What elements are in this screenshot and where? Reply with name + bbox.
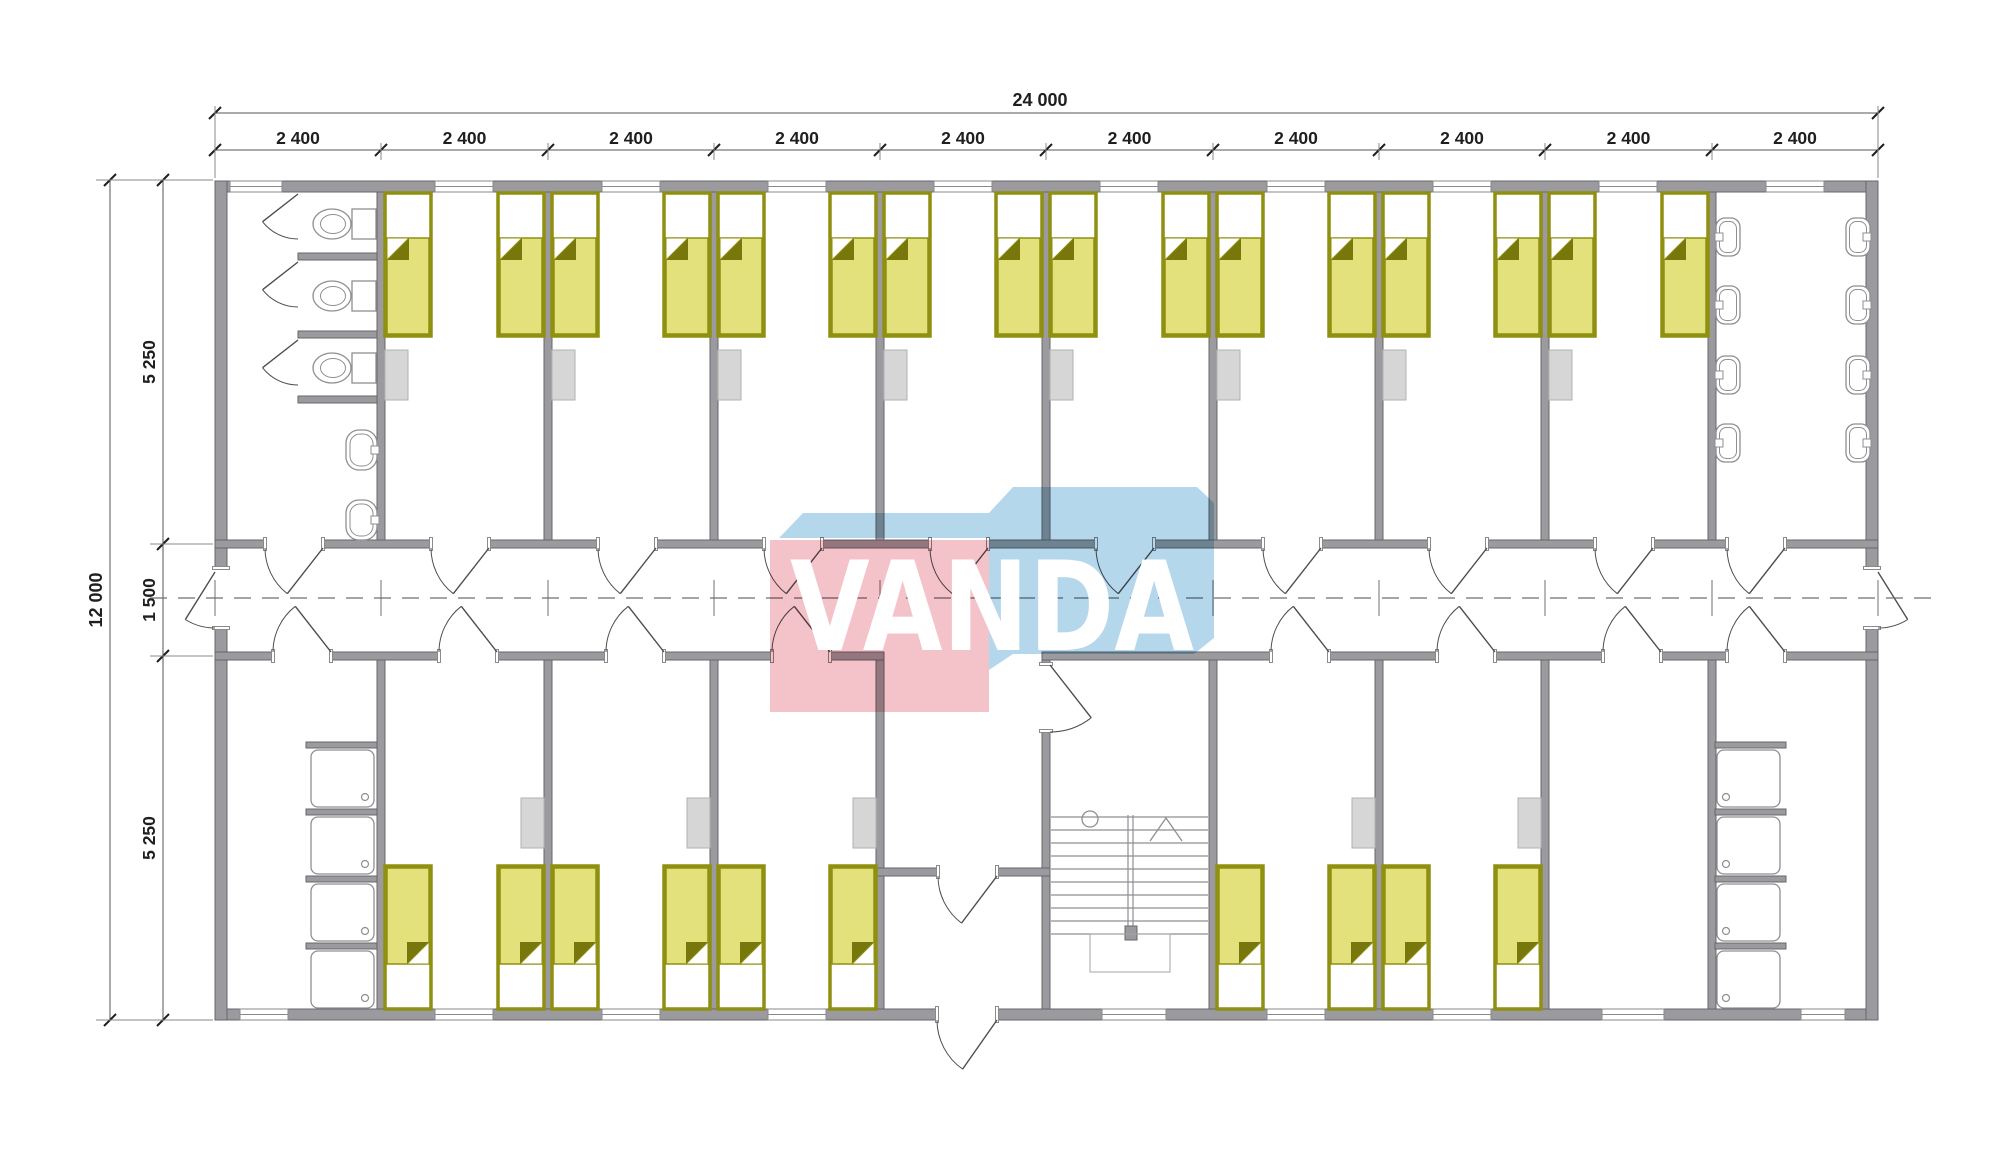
door-opening	[1429, 539, 1487, 550]
shower-partition	[1715, 809, 1786, 815]
bed	[1662, 193, 1708, 336]
bed	[1329, 866, 1375, 1009]
dim-label-2400: 2 400	[609, 128, 653, 148]
dim-label-segment: 5 250	[139, 340, 159, 384]
nightstand	[1352, 798, 1375, 848]
shower-tray	[1717, 951, 1780, 1008]
door-opening	[1437, 651, 1495, 662]
door-jamb	[213, 627, 230, 630]
stair-newel	[1125, 926, 1137, 940]
shower-partition	[306, 809, 377, 815]
nightstand	[687, 798, 710, 848]
shower-partition	[306, 876, 377, 882]
bed	[996, 193, 1042, 336]
nightstand	[884, 350, 907, 400]
shower-partition	[306, 943, 377, 949]
washbasin	[1715, 424, 1740, 462]
nightstand	[1217, 350, 1240, 400]
dim-label-12000: 12 000	[86, 572, 106, 627]
door-opening	[1271, 651, 1329, 662]
nightstand	[853, 798, 876, 848]
watermark-logo-text: VANDA	[790, 536, 1194, 680]
bed	[385, 193, 431, 336]
door-opening	[1603, 651, 1661, 662]
shower-drain	[362, 995, 369, 1002]
door-opening	[938, 867, 997, 878]
shower-drain	[1723, 794, 1730, 801]
shower-tray	[311, 884, 374, 941]
washbasin-tap	[1715, 301, 1723, 309]
dim-label-24000: 24 000	[1012, 90, 1067, 110]
shower-tray	[311, 750, 374, 807]
door-opening	[1595, 539, 1653, 550]
nightstand	[1518, 798, 1541, 848]
washbasin	[1846, 424, 1871, 462]
shower-partition	[306, 742, 377, 748]
shower-partition	[1715, 742, 1786, 748]
dim-label-2400: 2 400	[941, 128, 985, 148]
door-opening	[265, 539, 323, 550]
bed	[1549, 193, 1595, 336]
dim-label-2400: 2 400	[1440, 128, 1484, 148]
dim-label-2400: 2 400	[1274, 128, 1318, 148]
washbasin	[1846, 356, 1871, 394]
door-jamb	[213, 567, 230, 570]
bed	[1329, 193, 1375, 336]
bed	[664, 193, 710, 336]
toilet	[313, 353, 376, 383]
sink-tap	[371, 446, 379, 454]
sink	[346, 500, 379, 540]
washbasin	[1715, 218, 1740, 256]
bed	[1495, 193, 1541, 336]
shower-drain	[1723, 995, 1730, 1002]
shower-drain	[362, 861, 369, 868]
nightstand	[1383, 350, 1406, 400]
toilet-stall-partition	[298, 331, 377, 338]
washbasin	[1846, 218, 1871, 256]
bed	[1383, 866, 1429, 1009]
shower-partition	[1715, 943, 1786, 949]
dim-label-segment: 1 500	[139, 578, 159, 622]
nightstand	[1549, 350, 1572, 400]
door-opening	[1727, 651, 1785, 662]
bed	[718, 193, 764, 336]
nightstand	[1050, 350, 1073, 400]
bed	[1050, 193, 1096, 336]
toilet	[313, 281, 376, 311]
toilet-stall-partition	[298, 253, 377, 260]
door-opening	[598, 539, 656, 550]
toilet-tank	[352, 281, 376, 311]
shower-drain	[1723, 861, 1730, 868]
shower-tray	[1717, 884, 1780, 941]
washbasin-tap	[1863, 371, 1871, 379]
dim-label-2400: 2 400	[1773, 128, 1817, 148]
washbasin-tap	[1715, 371, 1723, 379]
floorplan: VANDA modular dormitory floor plan 24 00…	[0, 0, 2000, 1175]
bed	[552, 866, 598, 1009]
washbasin-tap	[1715, 233, 1723, 241]
bed	[718, 866, 764, 1009]
door-opening	[606, 651, 664, 662]
toilet	[313, 209, 376, 239]
nightstand	[718, 350, 741, 400]
door-opening	[439, 651, 497, 662]
sink	[346, 430, 379, 470]
shower-drain	[362, 928, 369, 935]
shower-tray	[311, 951, 374, 1008]
dim-label-2400: 2 400	[775, 128, 819, 148]
shower-drain	[1723, 928, 1730, 935]
shower-tray	[1717, 817, 1780, 874]
nightstand	[552, 350, 575, 400]
bed	[664, 866, 710, 1009]
dim-label-2400: 2 400	[443, 128, 487, 148]
washbasin-tap	[1863, 439, 1871, 447]
bed	[830, 193, 876, 336]
shower-tray	[311, 817, 374, 874]
bed	[1163, 193, 1209, 336]
shower-partition	[1715, 876, 1786, 882]
bed	[1495, 866, 1541, 1009]
bed	[884, 193, 930, 336]
door-opening	[1727, 539, 1785, 550]
dim-label-2400: 2 400	[1108, 128, 1152, 148]
dim-label-2400: 2 400	[1607, 128, 1651, 148]
shower-tray	[1717, 750, 1780, 807]
sink-tap	[371, 516, 379, 524]
bed	[1383, 193, 1429, 336]
bed	[830, 866, 876, 1009]
bed	[498, 193, 544, 336]
bed	[385, 866, 431, 1009]
floorplan-svg: VANDA modular dormitory floor plan 24 00…	[0, 0, 2000, 1175]
dim-label-segment: 5 250	[139, 816, 159, 860]
nightstand	[385, 350, 408, 400]
bed	[1217, 866, 1263, 1009]
door-opening	[937, 1008, 997, 1022]
bed	[552, 193, 598, 336]
washbasin	[1715, 286, 1740, 324]
toilet-tank	[352, 353, 376, 383]
washbasin-tap	[1863, 301, 1871, 309]
bed	[498, 866, 544, 1009]
partition-wall	[1708, 660, 1716, 1009]
dim-label-2400: 2 400	[276, 128, 320, 148]
door-jamb	[1864, 567, 1881, 570]
toilet-stall-partition	[298, 396, 377, 403]
washbasin	[1846, 286, 1871, 324]
toilet-tank	[352, 209, 376, 239]
washbasin	[1715, 356, 1740, 394]
door-opening	[1263, 539, 1321, 550]
washbasin-tap	[1863, 233, 1871, 241]
door-opening	[273, 651, 331, 662]
shower-drain	[362, 794, 369, 801]
door-jamb	[1864, 627, 1881, 630]
nightstand	[521, 798, 544, 848]
door-opening	[431, 539, 489, 550]
washbasin-tap	[1715, 439, 1723, 447]
bed	[1217, 193, 1263, 336]
